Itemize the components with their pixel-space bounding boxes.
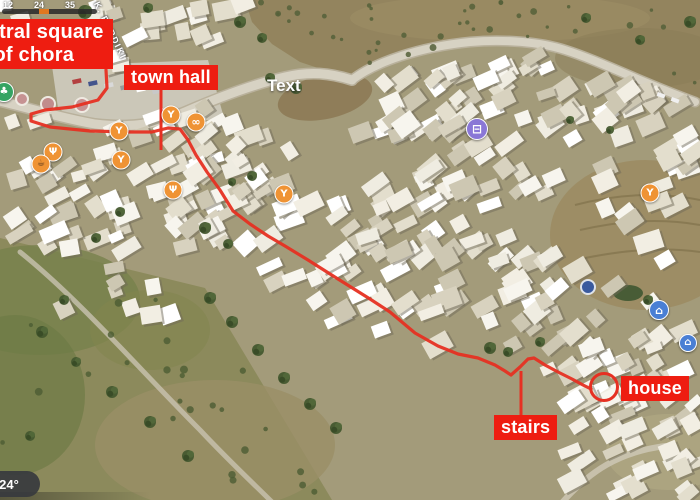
poi-bar-icon[interactable]: Y [162, 106, 181, 125]
hud-progress-bar [2, 9, 97, 14]
label-central-square-line1: central square [0, 21, 104, 43]
poi-bus-station-icon[interactable]: ⊟ [466, 118, 488, 140]
poi-layer: ♣Ψ☕YY∞YΨY⊟Y⌂⌂ [0, 0, 700, 500]
poi-donut-shop-icon[interactable]: ∞ [187, 113, 206, 132]
poi-museum-icon[interactable]: ⌂ [649, 300, 669, 320]
label-stairs: stairs [494, 415, 557, 440]
label-central-square: central square of chora [0, 19, 113, 69]
satellite-map-view[interactable]: ♣Ψ☕YY∞YΨY⊟Y⌂⌂ K. PERDIKI Text central sq… [0, 0, 700, 500]
poi-bar-icon[interactable]: Y [110, 122, 129, 141]
label-town-hall: town hall [124, 65, 218, 90]
hud-progress-segment [39, 9, 49, 14]
weather-chip[interactable]: 24° [0, 471, 40, 497]
label-house: house [621, 376, 689, 401]
label-central-square-line2: of chora [0, 44, 74, 66]
poi-cafe-icon[interactable]: ☕ [32, 155, 51, 174]
poi-park-icon[interactable]: ♣ [0, 82, 14, 102]
temperature-value: 24° [0, 477, 19, 492]
poi-restaurant-icon[interactable]: Ψ [164, 181, 183, 200]
poi-bar-icon[interactable]: Y [112, 151, 131, 170]
poi-bar-icon[interactable]: Y [275, 185, 294, 204]
poi-museum-icon[interactable]: ⌂ [679, 334, 697, 352]
poi-bar-icon[interactable]: Y [641, 184, 660, 203]
